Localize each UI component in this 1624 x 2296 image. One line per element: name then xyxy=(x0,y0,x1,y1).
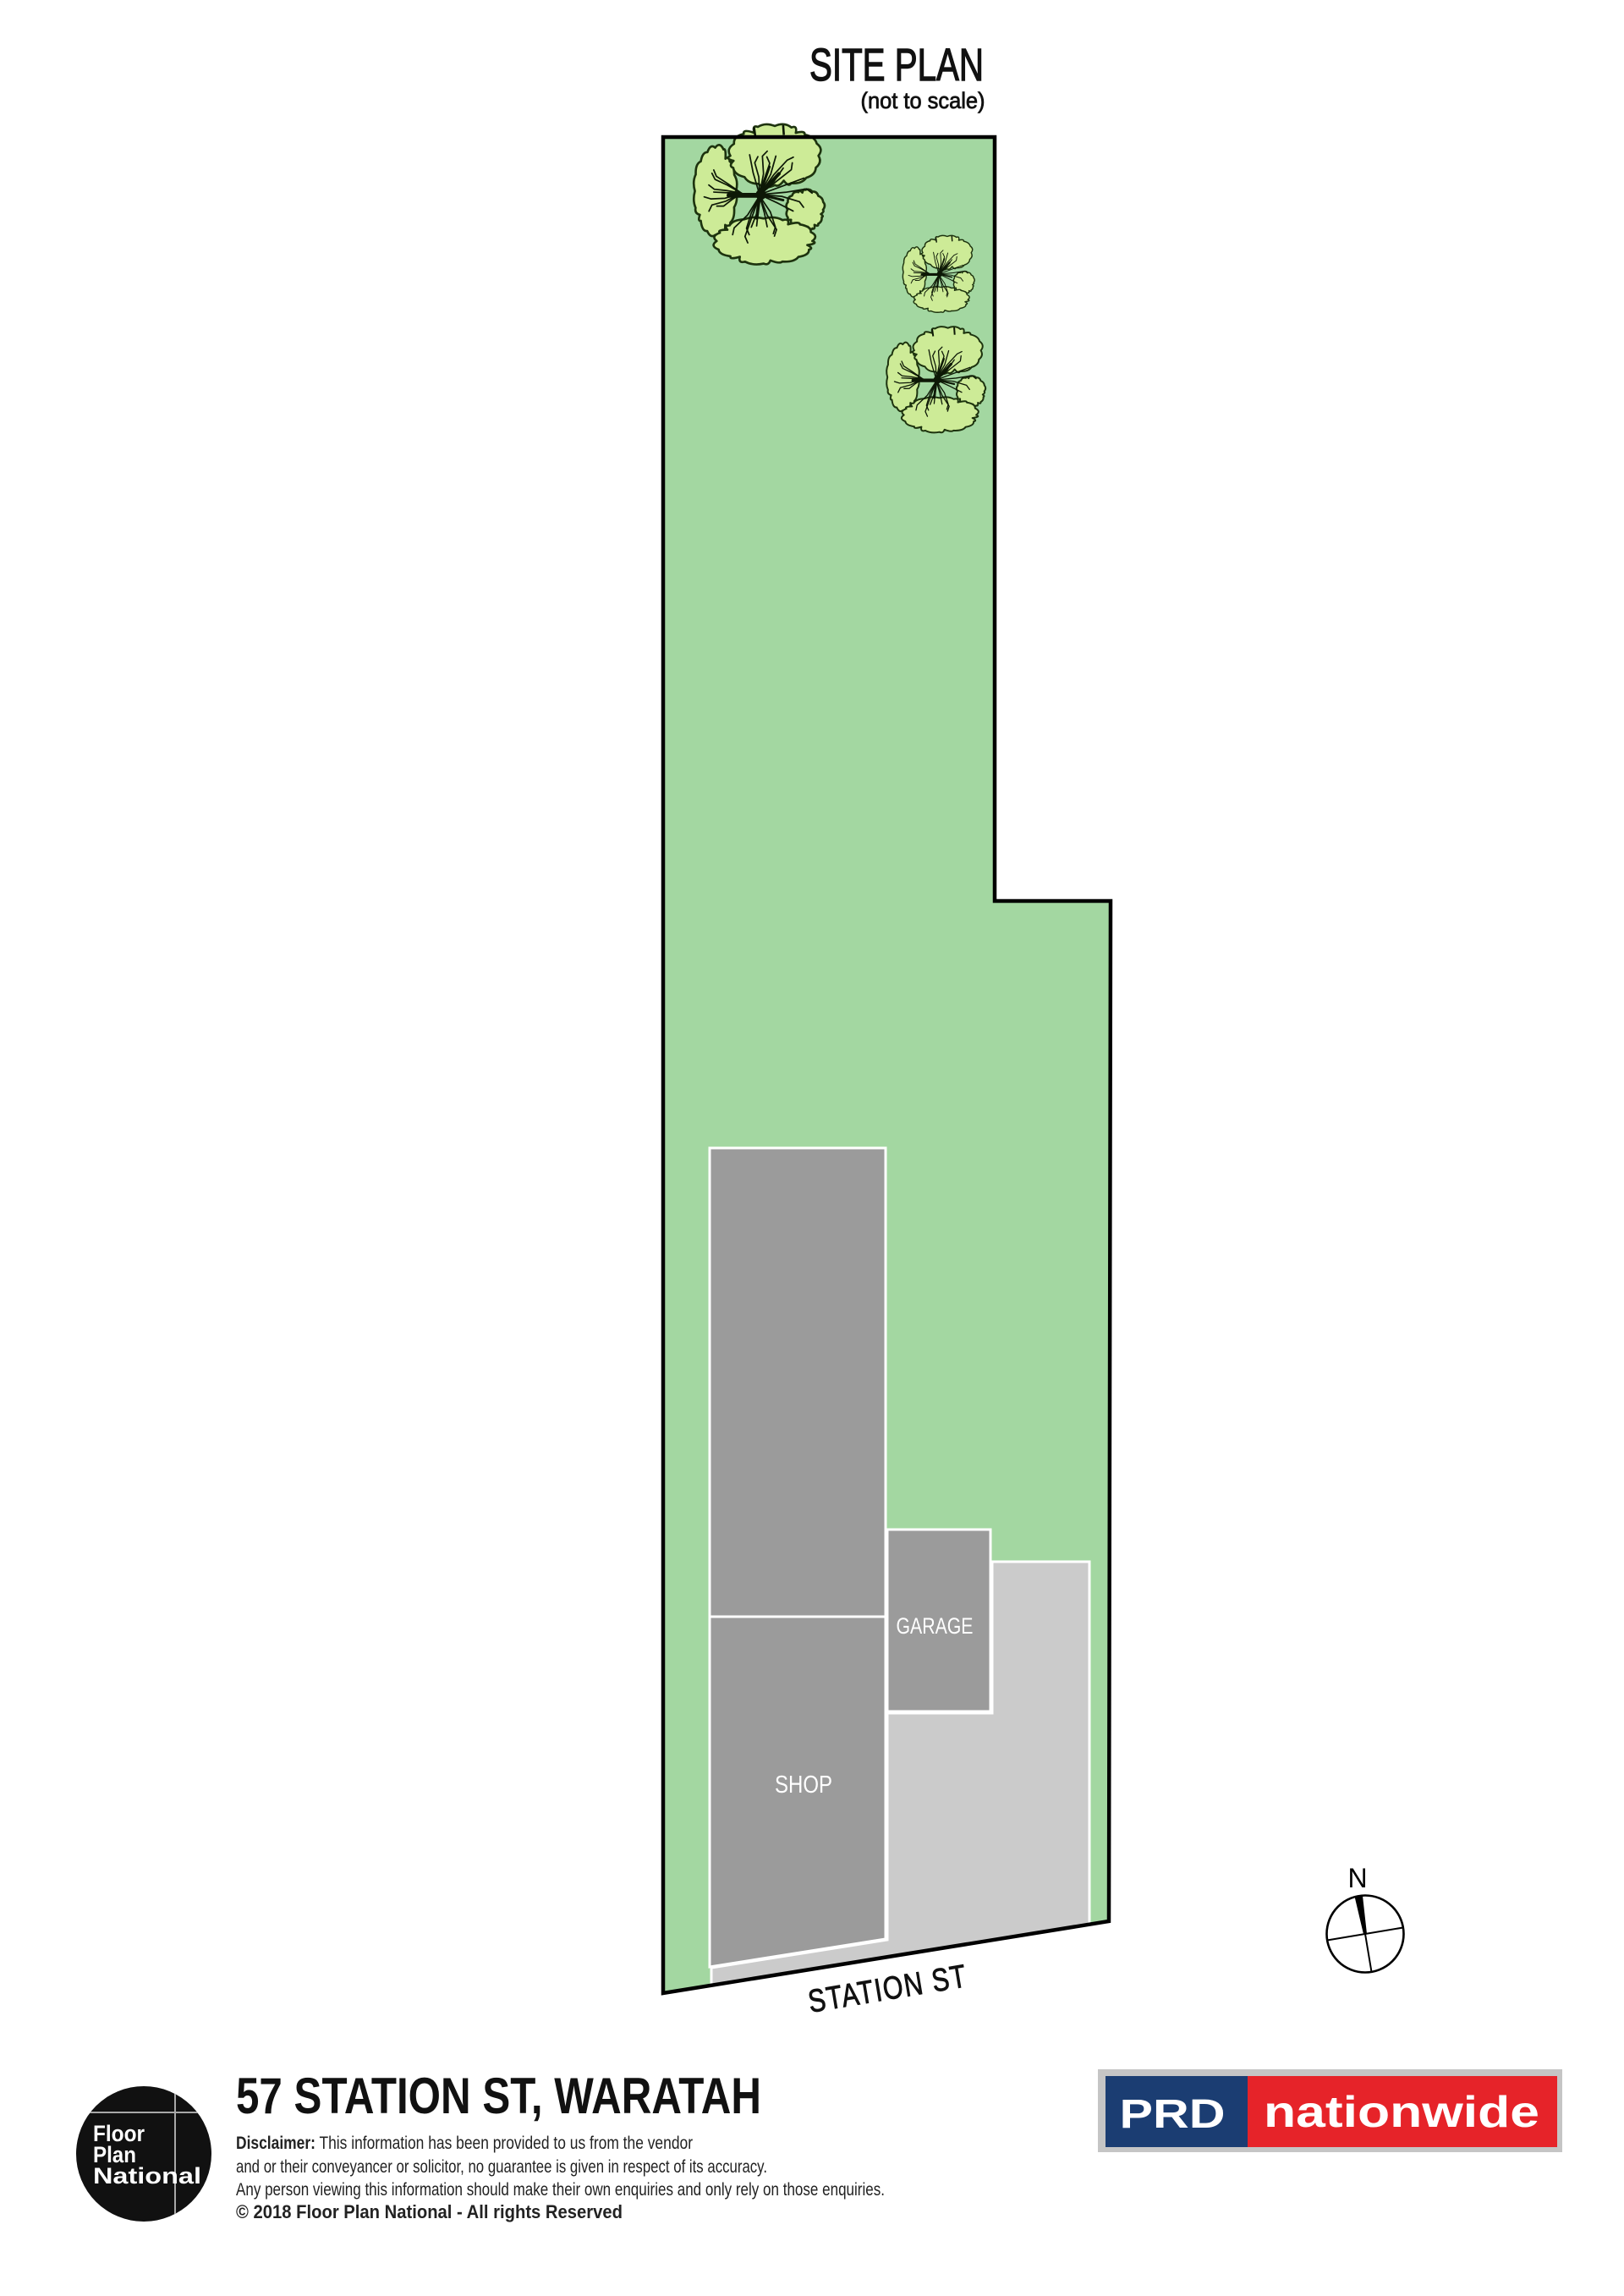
svg-text:SHOP: SHOP xyxy=(775,1771,832,1799)
svg-text:(not to scale): (not to scale) xyxy=(861,88,985,113)
svg-text:nationwide: nationwide xyxy=(1264,2088,1539,2137)
svg-text:Disclaimer: This information h: Disclaimer: This information has been pr… xyxy=(236,2134,693,2153)
svg-text:SITE PLAN: SITE PLAN xyxy=(809,40,984,91)
svg-text:N: N xyxy=(1347,1863,1367,1893)
svg-text:Any person viewing this inform: Any person viewing this information shou… xyxy=(236,2180,885,2200)
svg-text:© 2018 Floor Plan National - A: © 2018 Floor Plan National - All rights … xyxy=(236,2201,623,2222)
svg-text:GARAGE: GARAGE xyxy=(897,1613,974,1639)
svg-text:and or their conveyancer or so: and or their conveyancer or solicitor, n… xyxy=(236,2157,767,2177)
svg-text:PRD: PRD xyxy=(1120,2092,1226,2137)
svg-text:National: National xyxy=(93,2163,201,2189)
svg-text:57 STATION ST, WARATAH: 57 STATION ST, WARATAH xyxy=(236,2068,761,2124)
